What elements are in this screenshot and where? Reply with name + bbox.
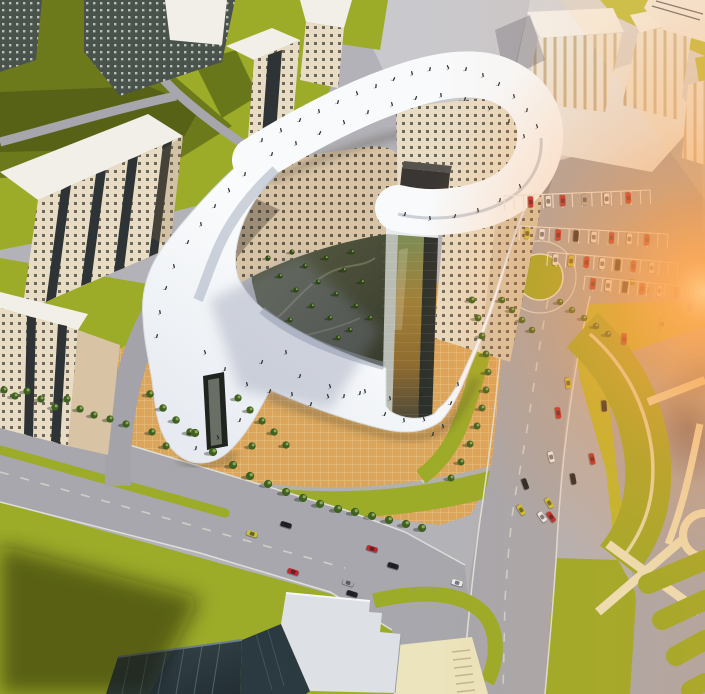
render-viewport xyxy=(0,0,705,694)
aerial-render xyxy=(0,0,705,694)
